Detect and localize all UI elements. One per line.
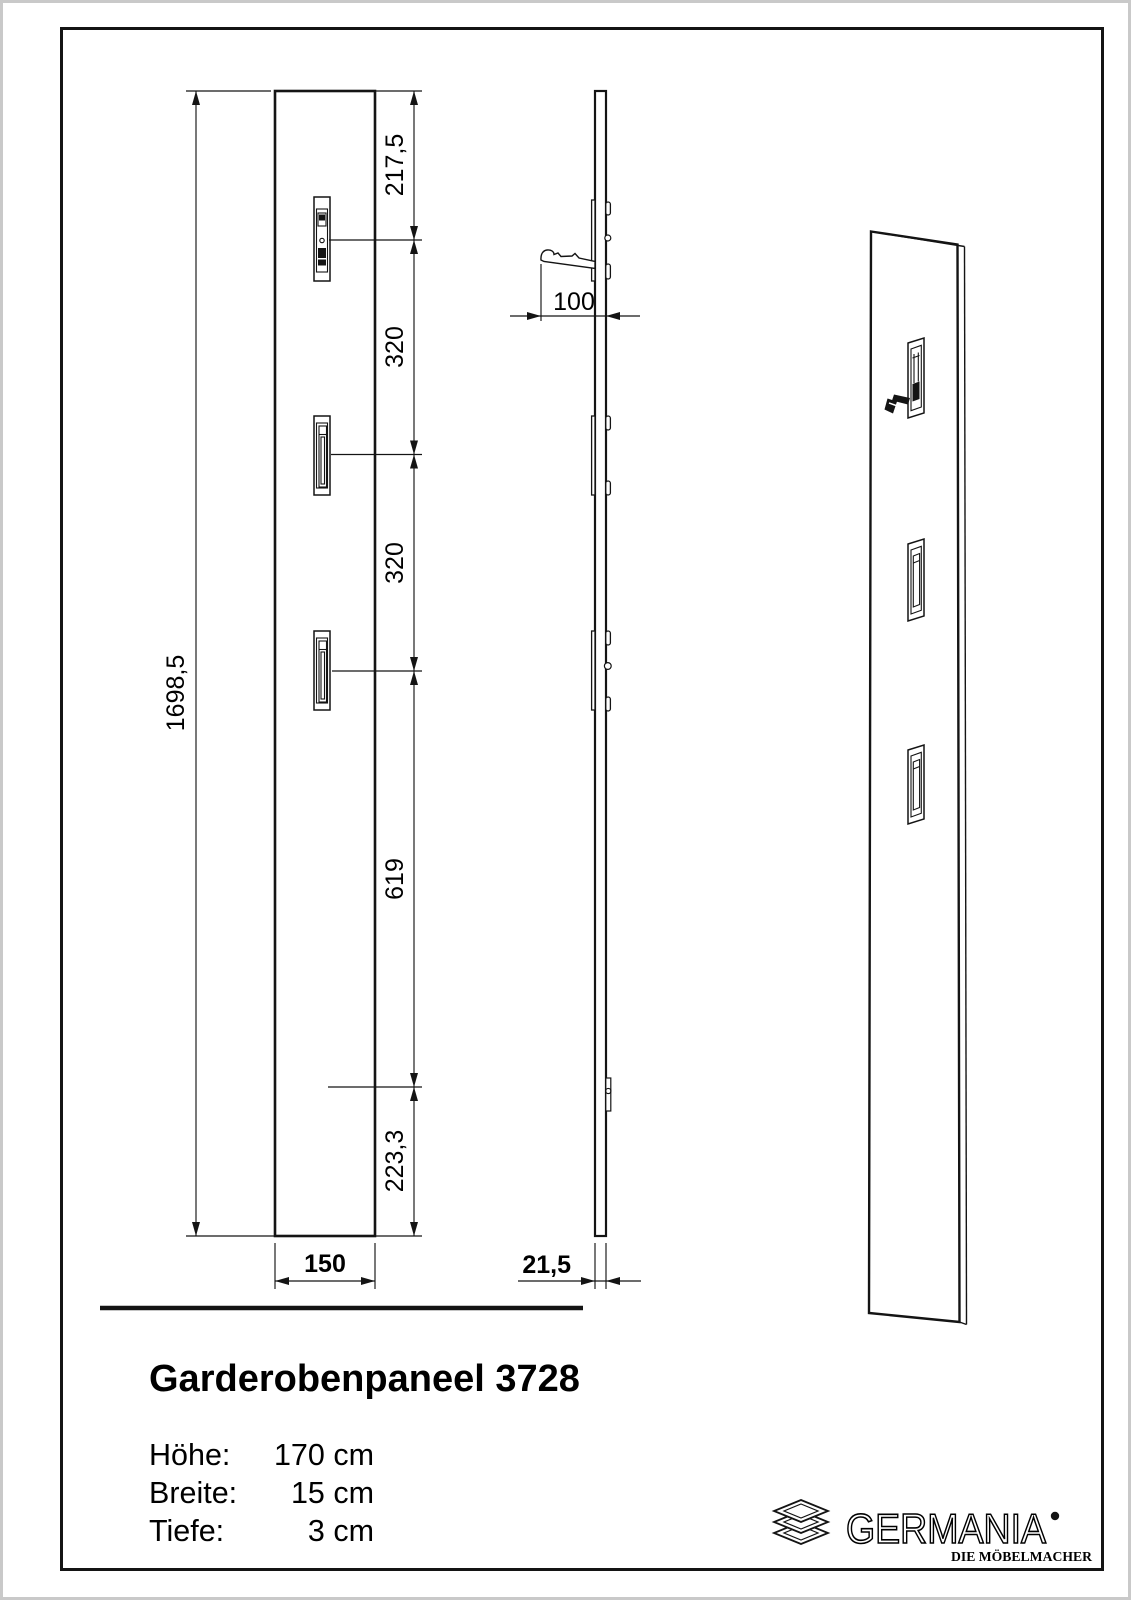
spec-label-breite: Breite:: [149, 1476, 237, 1510]
front-hook-1: [314, 197, 330, 281]
perspective-hook-3: [908, 745, 924, 824]
segment-label-1: 217,5: [381, 134, 409, 197]
perspective-view: [869, 232, 967, 1325]
dimension-panel-width: 150: [275, 1243, 375, 1289]
technical-drawing: 1698,5 217,5 320 320 619 223,3: [3, 3, 1131, 1600]
brand-tagline: DIE MÖBELMACHER: [951, 1549, 1092, 1564]
dimension-overall-height: 1698,5: [162, 91, 275, 1236]
segment-label-5: 223,3: [381, 1130, 409, 1193]
height-label: 1698,5: [162, 655, 190, 731]
side-hook-arm: [541, 250, 595, 269]
front-view: [275, 91, 375, 1236]
spec-table: Höhe: 170 cm Breite: 15 cm Tiefe: 3 cm: [149, 1438, 374, 1548]
perspective-hook-2: [908, 539, 924, 621]
drawing-page: 1698,5 217,5 320 320 619 223,3: [0, 0, 1131, 1600]
stacked-layers-icon: [774, 1500, 828, 1544]
side-panel-outline: [595, 91, 606, 1236]
segment-label-2: 320: [381, 326, 409, 368]
spec-label-hoehe: Höhe:: [149, 1438, 230, 1472]
registered-mark-dot: [1051, 1512, 1059, 1520]
wall-mount-bracket: [606, 1078, 611, 1111]
side-hook-plate-3: [592, 631, 595, 710]
panel-depth-label: 21,5: [522, 1251, 571, 1279]
width-label: 150: [304, 1250, 346, 1278]
spec-value-breite: 15 cm: [291, 1476, 374, 1510]
hook-depth-label: 100: [553, 288, 595, 316]
side-hook-plate-2: [592, 416, 595, 495]
dimension-hook-depth: 100: [510, 264, 640, 321]
dimension-panel-depth: 21,5: [518, 1243, 641, 1289]
germania-logo: GERMANIA DIE MÖBELMACHER: [774, 1500, 1092, 1564]
front-hook-2: [314, 416, 330, 495]
spec-value-hoehe: 170 cm: [274, 1438, 374, 1472]
spec-label-tiefe: Tiefe:: [149, 1514, 224, 1548]
side-view: [541, 91, 611, 1236]
brand-wordmark: GERMANIA: [846, 1505, 1046, 1552]
segment-label-4: 619: [381, 858, 409, 900]
front-hook-3: [314, 631, 330, 710]
segment-label-3: 320: [381, 542, 409, 584]
spec-value-tiefe: 3 cm: [308, 1514, 374, 1548]
product-title: Garderobenpaneel 3728: [149, 1358, 580, 1400]
